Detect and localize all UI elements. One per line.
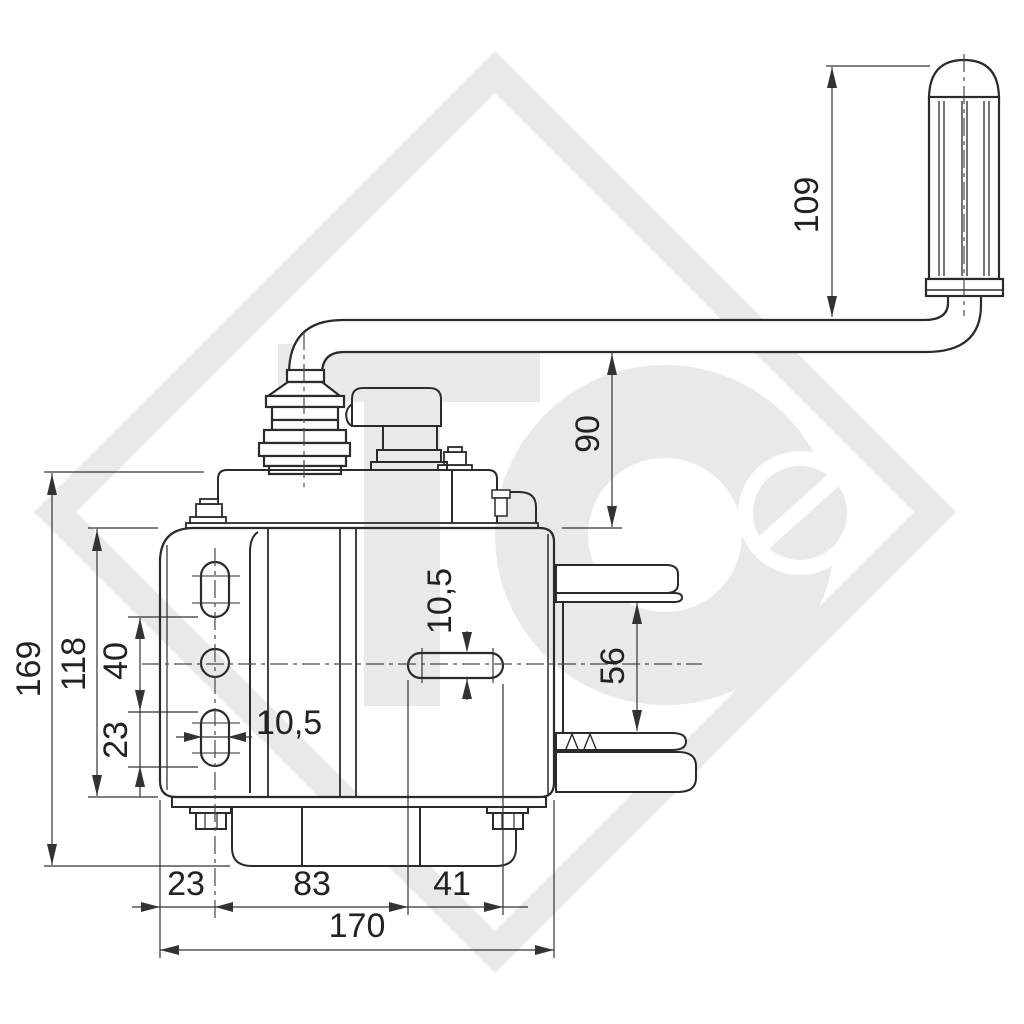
hex-nut-left [196,813,226,829]
technical-drawing: 109 90 169 118 40 23 10,5 10,5 56 23 83 … [0,0,1024,1024]
hex-nut-right [493,813,523,829]
dim-label-83: 83 [293,865,331,903]
top-plate [186,523,538,528]
dim-label-90: 90 [569,415,607,453]
dim-label-169: 169 [10,641,48,698]
base-assembly [172,797,546,866]
watermark-letter-t-stem [364,344,440,706]
gear-cover [186,447,538,528]
dim-label-23-left: 23 [97,721,135,759]
dim-label-10-5-left: 10,5 [256,704,322,742]
stack-band [264,430,346,443]
dim-label-109: 109 [788,177,826,234]
dim-label-40: 40 [97,642,135,680]
bottom-plate [172,797,546,807]
dim-label-23-bottom: 23 [167,865,205,903]
stack-band [264,456,346,466]
drum-bottom [232,807,516,866]
lower-bracket [556,752,696,792]
bolt-right [438,447,472,470]
dim-label-10-5-center: 10,5 [421,568,459,634]
drawing-page: 109 90 169 118 40 23 10,5 10,5 56 23 83 … [0,0,1024,1024]
cover-side-bolt [492,490,510,498]
upper-flange-lip [556,593,682,602]
dim-label-41: 41 [433,865,471,903]
stack-band [272,420,338,430]
dim-label-170: 170 [329,907,386,945]
cover-outline [218,470,497,523]
upper-flange [556,565,678,593]
dim-label-56: 56 [594,647,632,685]
dim-label-118: 118 [55,637,93,691]
shaft-collar [287,370,324,382]
bolt-left [190,499,226,523]
plate-fold [250,532,258,793]
cover-side-bolt [495,498,507,516]
stack-band [272,407,338,420]
stack-band [266,396,344,407]
